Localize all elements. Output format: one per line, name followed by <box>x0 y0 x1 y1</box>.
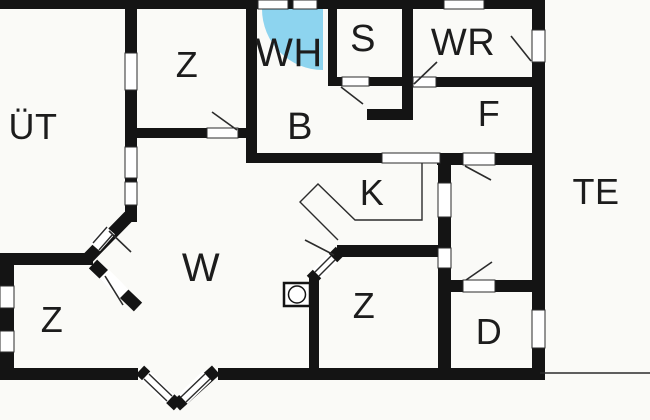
door-opening <box>463 153 495 165</box>
floor-plan-drawing: ÜTZWHSWRFBKTEWZZD <box>0 0 650 420</box>
wall-segment <box>246 153 382 163</box>
window <box>0 331 14 352</box>
room-label-s: S <box>350 18 376 60</box>
stove-icon <box>284 283 310 306</box>
room-label-f: F <box>478 93 501 134</box>
plan-background <box>0 0 650 420</box>
door-opening <box>438 183 451 217</box>
wall-segment <box>438 268 451 368</box>
room-label-uet: ÜT <box>9 106 58 147</box>
wall-segment <box>218 368 545 380</box>
room-label-z-top: Z <box>176 44 199 85</box>
window <box>125 182 137 205</box>
wall-segment <box>328 8 337 86</box>
terrace-door-opening <box>532 30 545 62</box>
window <box>125 53 137 90</box>
door-opening <box>463 280 495 292</box>
window <box>444 0 484 9</box>
room-label-wr: WR <box>431 22 495 64</box>
wall-segment <box>438 217 451 248</box>
window <box>293 0 317 9</box>
wall-segment <box>328 77 342 86</box>
room-label-w: W <box>182 246 220 290</box>
wall-segment <box>0 253 14 380</box>
door-opening <box>342 77 369 86</box>
room-label-te: TE <box>572 171 619 212</box>
wall-segment <box>450 280 463 292</box>
room-label-z-bottom-left: Z <box>41 299 64 340</box>
window <box>532 310 545 348</box>
wall-segment <box>495 153 533 165</box>
door-opening <box>438 248 451 268</box>
window <box>125 147 137 178</box>
floor-plan-page: ÜTZWHSWRFBKTEWZZD <box>0 0 650 420</box>
window <box>0 286 14 308</box>
wall-segment <box>132 128 207 138</box>
passage-opening <box>382 153 440 163</box>
wall-segment <box>495 280 533 292</box>
room-label-d: D <box>476 311 503 352</box>
room-label-k: K <box>360 172 385 213</box>
wall-segment <box>0 368 138 380</box>
window <box>258 0 288 9</box>
wall-segment <box>367 109 413 120</box>
wall-segment <box>436 77 533 87</box>
room-label-wh: WH <box>255 31 323 75</box>
door-opening <box>207 128 238 138</box>
room-label-z-bottom-center: Z <box>353 285 376 326</box>
room-label-b: B <box>287 106 313 148</box>
wall-segment <box>337 245 450 257</box>
wall-segment <box>402 8 413 120</box>
